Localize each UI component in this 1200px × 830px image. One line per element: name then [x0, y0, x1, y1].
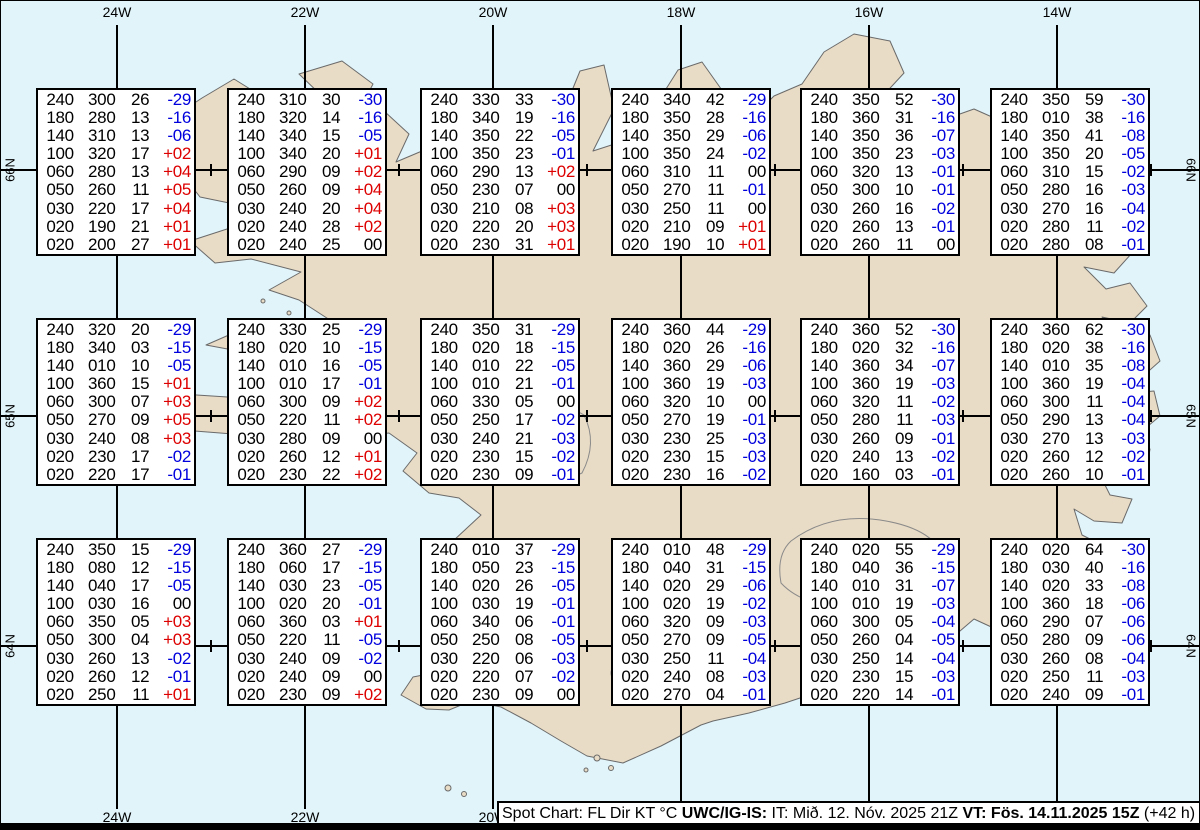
kt-value: 29: [691, 357, 725, 375]
spot-row: 05030010-01: [805, 181, 955, 199]
fl-value: 020: [41, 236, 74, 254]
temp-value: +02: [149, 145, 191, 163]
spot-row: 05028011-03: [805, 411, 955, 429]
temp-value: -16: [1103, 559, 1145, 577]
temp-value: -01: [533, 613, 575, 631]
fl-value: 180: [232, 559, 265, 577]
fl-value: 240: [805, 91, 838, 109]
spot-row: 03025014-04: [805, 650, 955, 668]
caption-valid-time: VT: Fös. 14.11.2025 15Z: [962, 805, 1139, 822]
kt-value: 34: [880, 357, 914, 375]
temp-value: -01: [1103, 236, 1145, 254]
temp-value: -05: [1103, 145, 1145, 163]
fl-value: 030: [995, 650, 1028, 668]
dir-value: 280: [1028, 218, 1070, 236]
fl-value: 060: [232, 613, 265, 631]
dir-value: 220: [265, 631, 307, 649]
spot-row: 06036003+01: [232, 613, 382, 631]
kt-value: 11: [116, 181, 150, 199]
dir-value: 360: [265, 613, 307, 631]
fl-value: 030: [41, 650, 74, 668]
spot-row: 02023015-03: [616, 448, 766, 466]
dir-value: 240: [838, 448, 880, 466]
dir-value: 280: [74, 109, 116, 127]
spot-row: 14002029-06: [616, 577, 766, 595]
temp-value: -15: [340, 559, 382, 577]
spot-row: 24002055-29: [805, 541, 955, 559]
kt-value: 09: [1070, 686, 1104, 704]
kt-value: 16: [116, 595, 150, 613]
spot-box: 24035031-2918002018-1514001022-051000102…: [420, 318, 580, 486]
temp-value: -29: [724, 321, 766, 339]
temp-value: -06: [1103, 631, 1145, 649]
kt-value: 19: [691, 375, 725, 393]
graticule-tick: [210, 410, 212, 422]
dir-value: 030: [1028, 559, 1070, 577]
kt-value: 24: [691, 145, 725, 163]
spot-row: 0202300900: [425, 686, 575, 704]
fl-value: 100: [995, 375, 1028, 393]
dir-value: 020: [265, 595, 307, 613]
spot-row: 05027009+05: [41, 411, 191, 429]
temp-value: -04: [1103, 200, 1145, 218]
dir-value: 230: [265, 466, 307, 484]
temp-value: -02: [149, 448, 191, 466]
kt-value: 16: [307, 357, 341, 375]
spot-row: 03022017+04: [41, 200, 191, 218]
kt-value: 09: [691, 218, 725, 236]
kt-value: 09: [880, 430, 914, 448]
dir-value: 350: [838, 145, 880, 163]
dir-value: 230: [265, 686, 307, 704]
spot-row: 1000301600: [41, 595, 191, 613]
graticule-tick: [1150, 410, 1152, 422]
kt-value: 21: [116, 218, 150, 236]
temp-value: -05: [533, 631, 575, 649]
spot-row: 24036044-29: [616, 321, 766, 339]
fl-value: 020: [995, 668, 1028, 686]
temp-value: -16: [533, 109, 575, 127]
kt-value: 36: [880, 559, 914, 577]
dir-value: 360: [838, 321, 880, 339]
fl-value: 060: [232, 393, 265, 411]
kt-value: 19: [500, 109, 534, 127]
temp-value: -02: [913, 200, 955, 218]
temp-value: -02: [1103, 163, 1145, 181]
kt-value: 09: [307, 163, 341, 181]
fl-value: 180: [805, 559, 838, 577]
kt-value: 11: [1070, 668, 1104, 686]
spot-row: 18002038-16: [995, 339, 1145, 357]
dir-value: 240: [265, 200, 307, 218]
spot-row: 02016003-01: [805, 466, 955, 484]
spot-row: 0202402500: [232, 236, 382, 254]
temp-value: -02: [1103, 448, 1145, 466]
spot-row: 02023031+01: [425, 236, 575, 254]
dir-value: 360: [838, 357, 880, 375]
temp-value: +03: [149, 430, 191, 448]
dir-value: 210: [649, 218, 691, 236]
lon-label-top: 22W: [291, 4, 320, 20]
fl-value: 030: [616, 430, 649, 448]
dir-value: 010: [265, 357, 307, 375]
dir-value: 220: [74, 200, 116, 218]
kt-value: 11: [880, 411, 914, 429]
kt-value: 13: [500, 163, 534, 181]
fl-value: 050: [425, 411, 458, 429]
kt-value: 37: [500, 541, 534, 559]
spot-row: 14034015-05: [232, 127, 382, 145]
temp-value: 00: [724, 200, 766, 218]
temp-value: -05: [724, 631, 766, 649]
spot-row: 18008012-15: [41, 559, 191, 577]
kt-value: 17: [116, 448, 150, 466]
dir-value: 020: [649, 577, 691, 595]
fl-value: 020: [425, 218, 458, 236]
fl-value: 050: [232, 631, 265, 649]
kt-value: 11: [1070, 218, 1104, 236]
fl-value: 140: [616, 127, 649, 145]
temp-value: -01: [913, 430, 955, 448]
fl-value: 100: [232, 375, 265, 393]
spot-row: 24001048-29: [616, 541, 766, 559]
spot-row: 02019021+01: [41, 218, 191, 236]
fl-value: 100: [805, 145, 838, 163]
fl-value: 020: [425, 466, 458, 484]
dir-value: 190: [74, 218, 116, 236]
temp-value: -29: [533, 541, 575, 559]
kt-value: 25: [307, 321, 341, 339]
fl-value: 060: [616, 613, 649, 631]
spot-row: 05022011-05: [232, 631, 382, 649]
dir-value: 200: [74, 236, 116, 254]
temp-value: -30: [340, 91, 382, 109]
fl-value: 140: [995, 127, 1028, 145]
spot-row: 18032014-16: [232, 109, 382, 127]
dir-value: 320: [265, 109, 307, 127]
caption-bar: Spot Chart: FL Dir KT °C UWC/IG-IS: IT: …: [497, 801, 1199, 825]
kt-value: 32: [880, 339, 914, 357]
kt-value: 14: [880, 650, 914, 668]
kt-value: 11: [691, 650, 725, 668]
temp-value: -15: [533, 559, 575, 577]
kt-value: 13: [880, 448, 914, 466]
spot-row: 10035023-03: [805, 145, 955, 163]
kt-value: 30: [307, 91, 341, 109]
spot-row: 05027019-01: [616, 411, 766, 429]
kt-value: 38: [1070, 109, 1104, 127]
kt-value: 11: [307, 631, 341, 649]
dir-value: 300: [74, 631, 116, 649]
lon-label-top: 20W: [479, 4, 508, 20]
spot-row: 18004031-15: [616, 559, 766, 577]
graticule-tick: [962, 164, 964, 176]
fl-value: 240: [41, 321, 74, 339]
kt-value: 04: [880, 631, 914, 649]
spot-box: 24036044-2918002026-1614036029-061003601…: [611, 318, 771, 486]
spot-row: 10035024-02: [616, 145, 766, 163]
kt-value: 08: [500, 200, 534, 218]
spot-row: 24034042-29: [616, 91, 766, 109]
fl-value: 240: [425, 91, 458, 109]
fl-value: 020: [616, 218, 649, 236]
temp-value: -01: [913, 218, 955, 236]
spot-row: 10036019-03: [616, 375, 766, 393]
temp-value: 00: [533, 393, 575, 411]
temp-value: -16: [724, 339, 766, 357]
kt-value: 21: [500, 375, 534, 393]
fl-value: 020: [616, 466, 649, 484]
kt-value: 28: [691, 109, 725, 127]
temp-value: -03: [724, 375, 766, 393]
kt-value: 06: [500, 613, 534, 631]
kt-value: 11: [691, 163, 725, 181]
temp-value: +03: [149, 613, 191, 631]
kt-value: 10: [880, 181, 914, 199]
fl-value: 030: [805, 650, 838, 668]
caption-center-id: UWC/IG-IS:: [682, 805, 767, 822]
spot-row: 03027016-04: [995, 200, 1145, 218]
fl-value: 020: [41, 668, 74, 686]
spot-row: 02022007-02: [425, 668, 575, 686]
spot-row: 10032017+02: [41, 145, 191, 163]
fl-value: 050: [995, 631, 1028, 649]
fl-value: 100: [805, 595, 838, 613]
fl-value: 240: [805, 541, 838, 559]
spot-row: 18002032-16: [805, 339, 955, 357]
dir-value: 340: [458, 109, 500, 127]
fl-value: 050: [425, 181, 458, 199]
kt-value: 33: [1070, 577, 1104, 595]
spot-box: 24034042-2918035028-1614035029-061003502…: [611, 88, 771, 256]
fl-value: 020: [995, 236, 1028, 254]
lat-label-right: 64N: [1184, 634, 1199, 658]
fl-value: 020: [805, 236, 838, 254]
spot-row: 03024021-03: [425, 430, 575, 448]
dir-value: 320: [838, 163, 880, 181]
dir-value: 190: [649, 236, 691, 254]
fl-value: 030: [425, 650, 458, 668]
fl-value: 020: [805, 448, 838, 466]
spot-row: 24035059-30: [995, 91, 1145, 109]
temp-value: -02: [533, 668, 575, 686]
temp-value: -01: [913, 466, 955, 484]
spot-row: 02022014-01: [805, 686, 955, 704]
fl-value: 100: [41, 595, 74, 613]
fl-value: 060: [425, 393, 458, 411]
spot-row: 18036031-16: [805, 109, 955, 127]
temp-value: -01: [724, 686, 766, 704]
fl-value: 030: [41, 200, 74, 218]
temp-value: -05: [340, 631, 382, 649]
lat-label-left: 64N: [3, 634, 18, 658]
temp-value: -05: [149, 577, 191, 595]
spot-row: 06030011-04: [995, 393, 1145, 411]
temp-value: -02: [724, 145, 766, 163]
fl-value: 020: [41, 218, 74, 236]
fl-value: 020: [805, 466, 838, 484]
dir-value: 260: [74, 181, 116, 199]
fl-value: 050: [41, 181, 74, 199]
dir-value: 280: [1028, 236, 1070, 254]
spot-box: 24031030-3018032014-1614034015-051003402…: [227, 88, 387, 256]
dir-value: 210: [458, 200, 500, 218]
temp-value: -07: [913, 127, 955, 145]
kt-value: 33: [500, 91, 534, 109]
kt-value: 17: [116, 466, 150, 484]
temp-value: -29: [149, 541, 191, 559]
temp-value: -04: [724, 650, 766, 668]
dir-value: 230: [649, 430, 691, 448]
fl-value: 140: [805, 577, 838, 595]
fl-value: 020: [616, 686, 649, 704]
fl-value: 020: [232, 686, 265, 704]
temp-value: -02: [724, 595, 766, 613]
fl-value: 180: [805, 109, 838, 127]
kt-value: 11: [880, 393, 914, 411]
dir-value: 280: [265, 430, 307, 448]
spot-row: 02022020+03: [425, 218, 575, 236]
temp-value: +04: [340, 200, 382, 218]
dir-value: 160: [838, 466, 880, 484]
spot-row: 10002020-01: [232, 595, 382, 613]
kt-value: 14: [307, 109, 341, 127]
kt-value: 38: [1070, 339, 1104, 357]
fl-value: 180: [995, 339, 1028, 357]
spot-row: 0202400900: [232, 668, 382, 686]
dir-value: 300: [1028, 393, 1070, 411]
spot-row: 18005023-15: [425, 559, 575, 577]
spot-row: 05026004-05: [805, 631, 955, 649]
spot-row: 02026012-01: [41, 668, 191, 686]
spot-row: 02023015-02: [425, 448, 575, 466]
spot-row: 0302501100: [616, 200, 766, 218]
fl-value: 140: [41, 577, 74, 595]
dir-value: 260: [74, 668, 116, 686]
temp-value: -01: [340, 375, 382, 393]
fl-value: 100: [616, 375, 649, 393]
dir-value: 250: [74, 686, 116, 704]
fl-value: 140: [995, 577, 1028, 595]
dir-value: 270: [649, 181, 691, 199]
fl-value: 140: [805, 127, 838, 145]
spot-row: 10001017-01: [232, 375, 382, 393]
dir-value: 010: [838, 595, 880, 613]
dir-value: 340: [265, 127, 307, 145]
spot-row: 14004017-05: [41, 577, 191, 595]
dir-value: 020: [649, 595, 691, 613]
temp-value: +01: [340, 613, 382, 631]
temp-value: -06: [149, 127, 191, 145]
kt-value: 15: [116, 541, 150, 559]
kt-value: 64: [1070, 541, 1104, 559]
spot-row: 18002026-16: [616, 339, 766, 357]
dir-value: 270: [649, 686, 691, 704]
fl-value: 050: [41, 411, 74, 429]
spot-row: 14001016-05: [232, 357, 382, 375]
temp-value: -04: [913, 613, 955, 631]
dir-value: 350: [458, 145, 500, 163]
spot-row: 06030009+02: [232, 393, 382, 411]
spot-row: 05025017-02: [425, 411, 575, 429]
dir-value: 350: [838, 127, 880, 145]
fl-value: 060: [232, 163, 265, 181]
kt-value: 31: [880, 577, 914, 595]
kt-value: 52: [880, 91, 914, 109]
temp-value: -05: [340, 127, 382, 145]
kt-value: 11: [880, 236, 914, 254]
fl-value: 060: [805, 163, 838, 181]
dir-value: 270: [1028, 200, 1070, 218]
kt-value: 59: [1070, 91, 1104, 109]
spot-row: 14031013-06: [41, 127, 191, 145]
spot-row: 14035041-08: [995, 127, 1145, 145]
fl-value: 060: [425, 163, 458, 181]
kt-value: 03: [880, 466, 914, 484]
temp-value: -05: [340, 577, 382, 595]
dir-value: 020: [265, 339, 307, 357]
spot-row: 24033033-30: [425, 91, 575, 109]
dir-value: 240: [1028, 686, 1070, 704]
kt-value: 27: [307, 541, 341, 559]
temp-value: -03: [724, 668, 766, 686]
spot-row: 0603201000: [616, 393, 766, 411]
graticule-tick: [774, 164, 776, 176]
dir-value: 280: [74, 163, 116, 181]
spot-row: 02028008-01: [995, 236, 1145, 254]
temp-value: 00: [340, 236, 382, 254]
spot-row: 02026012+01: [232, 448, 382, 466]
spot-row: 03023025-03: [616, 430, 766, 448]
dir-value: 230: [838, 668, 880, 686]
fl-value: 180: [425, 339, 458, 357]
kt-value: 12: [307, 448, 341, 466]
kt-value: 55: [880, 541, 914, 559]
spot-row: 0603300500: [425, 393, 575, 411]
spot-row: 0603101100: [616, 163, 766, 181]
spot-row: 10034020+01: [232, 145, 382, 163]
fl-value: 100: [425, 595, 458, 613]
spot-row: 02020027+01: [41, 236, 191, 254]
kt-value: 17: [307, 375, 341, 393]
temp-value: +05: [149, 181, 191, 199]
temp-value: -16: [913, 339, 955, 357]
temp-value: -01: [724, 411, 766, 429]
dir-value: 350: [649, 145, 691, 163]
kt-value: 41: [1070, 127, 1104, 145]
fl-value: 030: [805, 430, 838, 448]
fl-value: 030: [425, 200, 458, 218]
caption-legend: Spot Chart: FL Dir KT °C: [502, 805, 682, 822]
kt-value: 09: [691, 613, 725, 631]
temp-value: 00: [533, 686, 575, 704]
fl-value: 180: [425, 559, 458, 577]
dir-value: 230: [458, 466, 500, 484]
spot-row: 06034006-01: [425, 613, 575, 631]
temp-value: 00: [340, 668, 382, 686]
temp-value: -01: [913, 181, 955, 199]
lon-label-top: 18W: [667, 4, 696, 20]
temp-value: -16: [1103, 339, 1145, 357]
fl-value: 100: [232, 145, 265, 163]
spot-row: 02027004-01: [616, 686, 766, 704]
temp-value: 00: [340, 430, 382, 448]
spot-row: 03021008+03: [425, 200, 575, 218]
temp-value: -03: [533, 430, 575, 448]
spot-row: 14001010-05: [41, 357, 191, 375]
kt-value: 09: [691, 631, 725, 649]
kt-value: 03: [307, 613, 341, 631]
